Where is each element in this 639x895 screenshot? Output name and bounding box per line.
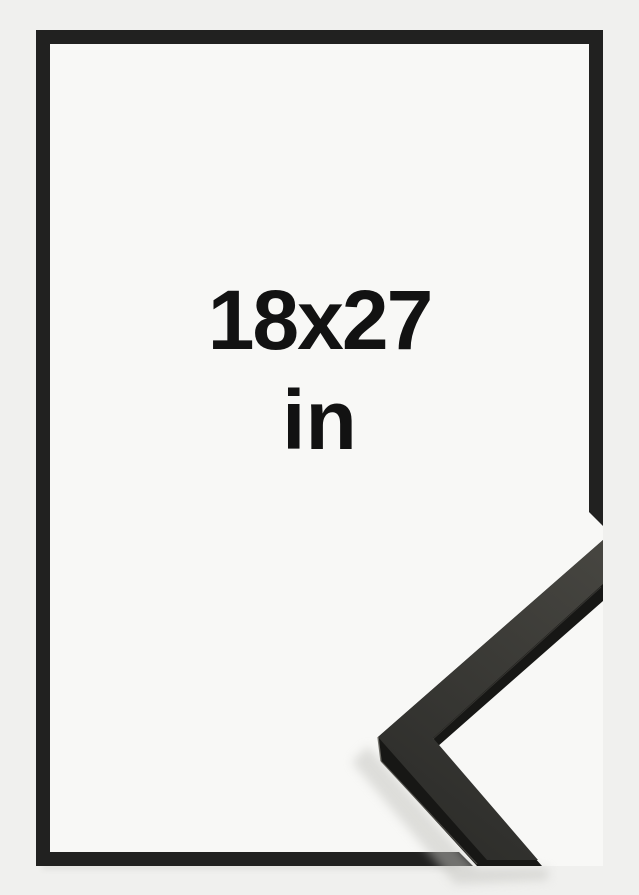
product-image: 18x27 in — [0, 0, 639, 895]
size-label: 18x27 in — [36, 270, 603, 470]
frame-border-top — [36, 30, 603, 44]
size-value: 18x27 — [36, 270, 603, 370]
size-unit: in — [36, 370, 603, 470]
frame-border-bottom — [36, 852, 473, 866]
